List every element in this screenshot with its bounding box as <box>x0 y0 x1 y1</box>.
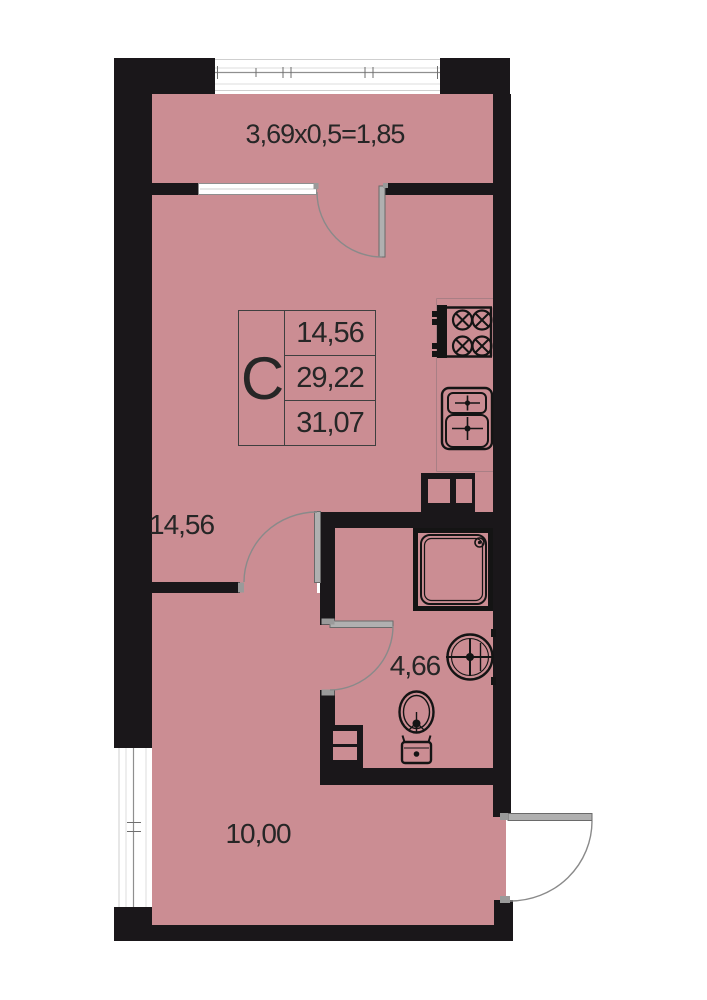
wall-segment <box>383 183 493 195</box>
room-door-threshold <box>240 582 317 593</box>
balcony-dimension-label: 3,69x0,5=1,85 <box>205 119 445 150</box>
wall-segment <box>440 58 510 94</box>
wall-segment <box>320 528 335 625</box>
duct-shaft-opening <box>333 731 357 744</box>
hall-floor <box>320 785 495 925</box>
wall-segment <box>493 94 511 817</box>
wall-segment <box>320 768 510 785</box>
apartment-type-label: C <box>239 311 285 445</box>
entrance-door-leaf <box>508 814 592 821</box>
balcony-glazing <box>215 58 440 92</box>
wall-segment <box>152 582 240 593</box>
room-label-living: 14,56 <box>149 509 214 541</box>
wall-segment <box>152 183 198 195</box>
floor-plan: C 14,56 29,22 31,07 3,69x0,5=1,85 14,56 … <box>0 0 707 1000</box>
entrance-door-arc <box>510 821 592 901</box>
vent-shaft-opening <box>428 479 450 503</box>
entrance-threshold <box>493 817 506 900</box>
room-label-hall: 10,00 <box>218 818 298 850</box>
balcony-door-threshold <box>317 183 383 195</box>
hall-window <box>113 748 152 907</box>
bathroom-door-threshold <box>320 625 335 690</box>
living-room-window <box>198 183 317 195</box>
stamp-area: 29,22 <box>285 355 375 400</box>
stamp-total-area: 31,07 <box>285 400 375 445</box>
stamp-living-area: 14,56 <box>285 311 375 355</box>
room-label-bathroom: 4,66 <box>381 650 449 682</box>
wall-segment <box>320 512 510 528</box>
apartment-stamp: C 14,56 29,22 31,07 <box>238 310 376 446</box>
wall-segment <box>114 94 152 748</box>
duct-shaft-opening <box>333 747 357 760</box>
wall-segment <box>114 925 513 941</box>
wall-segment <box>114 58 215 94</box>
hall-floor <box>152 593 320 925</box>
vent-shaft-opening <box>456 479 472 503</box>
